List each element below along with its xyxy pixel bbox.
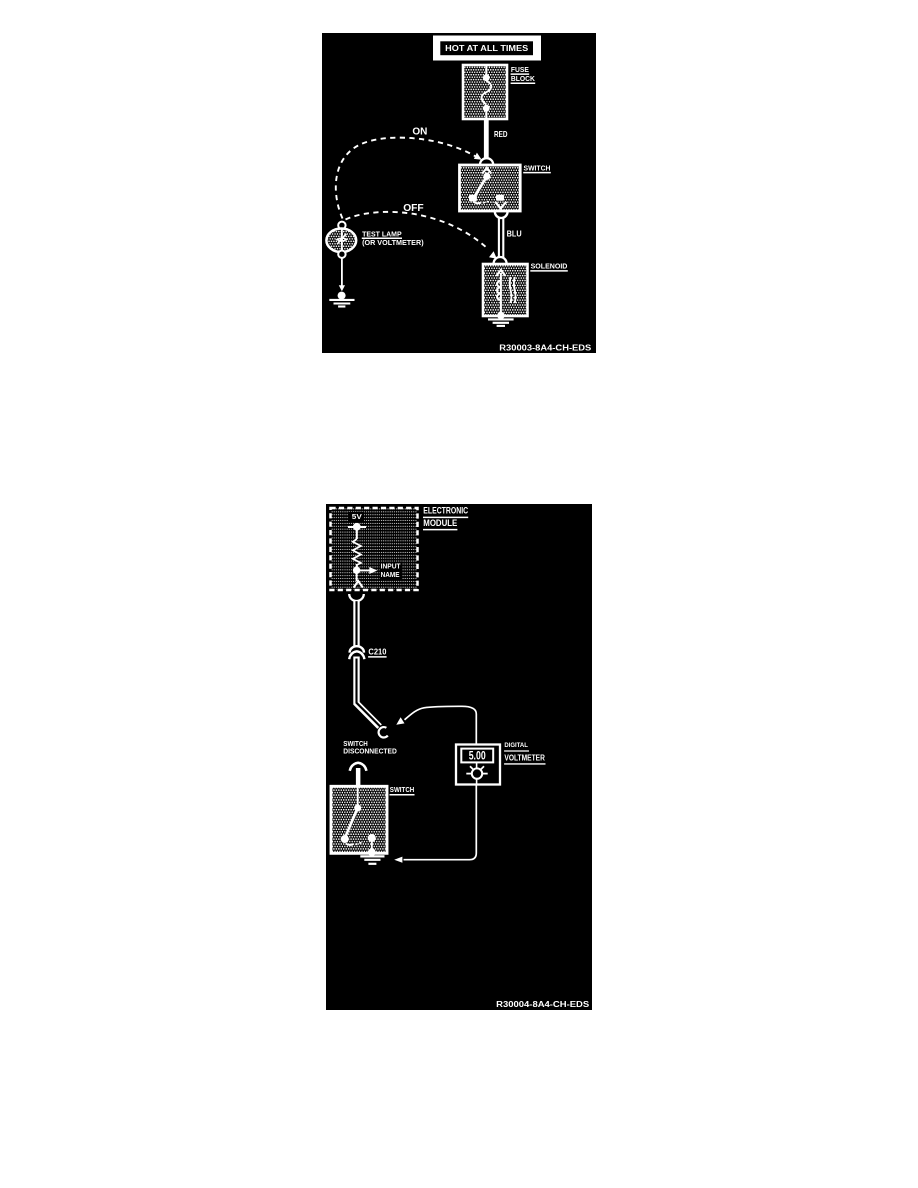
svg-text:5V: 5V bbox=[352, 512, 362, 521]
svg-text:SWITCH: SWITCH bbox=[390, 785, 415, 794]
svg-text:TEST LAMP: TEST LAMP bbox=[362, 229, 402, 238]
svg-text:ON: ON bbox=[412, 127, 427, 138]
svg-text:(OR VOLTMETER): (OR VOLTMETER) bbox=[362, 238, 424, 247]
svg-text:R30003-8A4-CH-EDS: R30003-8A4-CH-EDS bbox=[499, 342, 591, 352]
svg-text:5.00: 5.00 bbox=[469, 750, 486, 762]
svg-text:HOT AT ALL TIMES: HOT AT ALL TIMES bbox=[445, 44, 529, 53]
svg-text:FUSE: FUSE bbox=[511, 65, 529, 74]
svg-text:DIGITAL: DIGITAL bbox=[504, 742, 528, 749]
svg-text:C210: C210 bbox=[368, 647, 387, 656]
svg-text:VOLTMETER: VOLTMETER bbox=[504, 754, 545, 763]
svg-text:RED: RED bbox=[494, 130, 508, 139]
svg-text:ELECTRONIC: ELECTRONIC bbox=[423, 506, 468, 516]
svg-text:INPUT: INPUT bbox=[381, 561, 401, 570]
svg-text:SWITCH: SWITCH bbox=[524, 163, 551, 172]
svg-text:OFF: OFF bbox=[403, 202, 424, 214]
svg-text:R30004-8A4-CH-EDS: R30004-8A4-CH-EDS bbox=[496, 999, 589, 1009]
svg-text:MODULE: MODULE bbox=[423, 518, 457, 528]
svg-text:SOLENOID: SOLENOID bbox=[531, 262, 568, 271]
svg-text:DISCONNECTED: DISCONNECTED bbox=[343, 747, 397, 756]
svg-text:NAME: NAME bbox=[381, 570, 400, 579]
svg-text:BLOCK: BLOCK bbox=[511, 74, 535, 83]
svg-text:BLU: BLU bbox=[507, 230, 522, 239]
